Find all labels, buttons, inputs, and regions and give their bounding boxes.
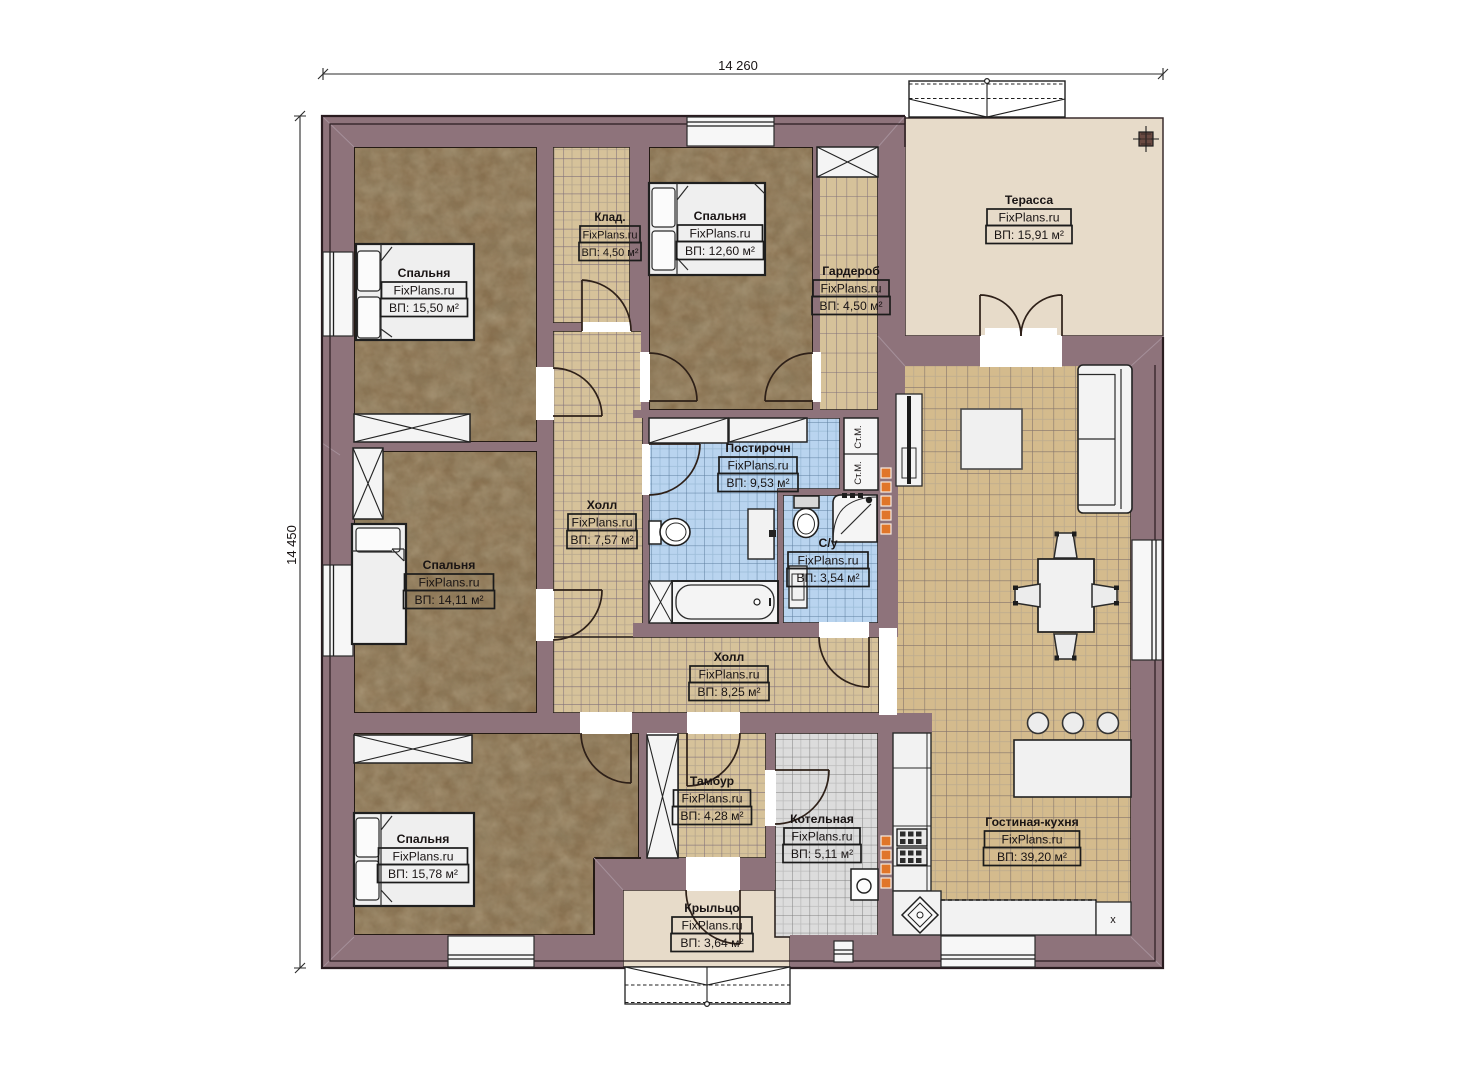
svg-text:FixPlans.ru: FixPlans.ru [393,850,454,864]
svg-text:Гардероб: Гардероб [822,264,880,278]
svg-text:FixPlans.ru: FixPlans.ru [999,211,1060,225]
svg-text:FixPlans.ru: FixPlans.ru [792,830,853,844]
svg-text:Терасса: Терасса [1005,193,1054,207]
svg-text:FixPlans.ru: FixPlans.ru [699,668,760,682]
svg-text:Ст.М.: Ст.М. [853,461,864,484]
svg-text:Клад.: Клад. [594,212,625,224]
svg-text:Спальня: Спальня [423,558,476,572]
svg-text:ВП: 15,50 м²: ВП: 15,50 м² [389,301,459,315]
svg-text:14 260: 14 260 [718,58,758,73]
svg-text:x: x [1110,914,1116,926]
svg-text:ВП: 4,28 м²: ВП: 4,28 м² [680,809,743,823]
svg-text:Холл: Холл [714,650,745,664]
svg-text:Тамбур: Тамбур [690,774,734,788]
svg-text:ВП: 15,78 м²: ВП: 15,78 м² [388,867,458,881]
svg-text:Спальня: Спальня [694,209,747,223]
svg-text:FixPlans.ru: FixPlans.ru [821,282,882,296]
svg-text:ВП: 8,25 м²: ВП: 8,25 м² [697,685,760,699]
svg-text:FixPlans.ru: FixPlans.ru [798,554,859,568]
svg-text:ВП: 14,11 м²: ВП: 14,11 м² [414,593,483,607]
svg-text:ВП: 3,64 м²: ВП: 3,64 м² [680,936,743,950]
svg-text:ВП: 12,60 м²: ВП: 12,60 м² [685,244,755,258]
svg-text:Гостиная-кухня: Гостиная-кухня [985,815,1078,829]
svg-text:ВП: 5,11 м²: ВП: 5,11 м² [791,847,853,861]
svg-text:FixPlans.ru: FixPlans.ru [682,919,743,933]
svg-text:ВП: 7,57 м²: ВП: 7,57 м² [570,533,633,547]
svg-text:14 450: 14 450 [284,525,299,565]
svg-text:Крыльцо: Крыльцо [684,901,739,915]
svg-text:ВП: 4,50 м²: ВП: 4,50 м² [581,247,638,259]
svg-text:Спальня: Спальня [397,832,450,846]
svg-text:Ст.М.: Ст.М. [853,425,864,448]
svg-text:Котельная: Котельная [790,812,854,826]
svg-text:ВП: 9,53 м²: ВП: 9,53 м² [726,476,789,490]
svg-text:Постирочн: Постирочн [725,441,790,455]
svg-text:ВП: 3,54 м²: ВП: 3,54 м² [796,571,859,585]
svg-text:FixPlans.ru: FixPlans.ru [394,284,455,298]
svg-text:Холл: Холл [587,498,618,512]
svg-text:FixPlans.ru: FixPlans.ru [582,230,637,242]
svg-text:Спальня: Спальня [398,266,451,280]
svg-text:ВП: 15,91 м²: ВП: 15,91 м² [994,228,1064,242]
svg-text:FixPlans.ru: FixPlans.ru [690,227,751,241]
svg-text:FixPlans.ru: FixPlans.ru [419,576,480,590]
svg-text:FixPlans.ru: FixPlans.ru [682,792,743,806]
svg-text:ВП: 4,50 м²: ВП: 4,50 м² [819,299,882,313]
svg-text:FixPlans.ru: FixPlans.ru [1002,833,1063,847]
svg-text:FixPlans.ru: FixPlans.ru [728,459,789,473]
svg-text:С/у: С/у [819,536,838,550]
svg-text:ВП: 39,20 м²: ВП: 39,20 м² [997,850,1067,864]
svg-text:FixPlans.ru: FixPlans.ru [572,516,633,530]
